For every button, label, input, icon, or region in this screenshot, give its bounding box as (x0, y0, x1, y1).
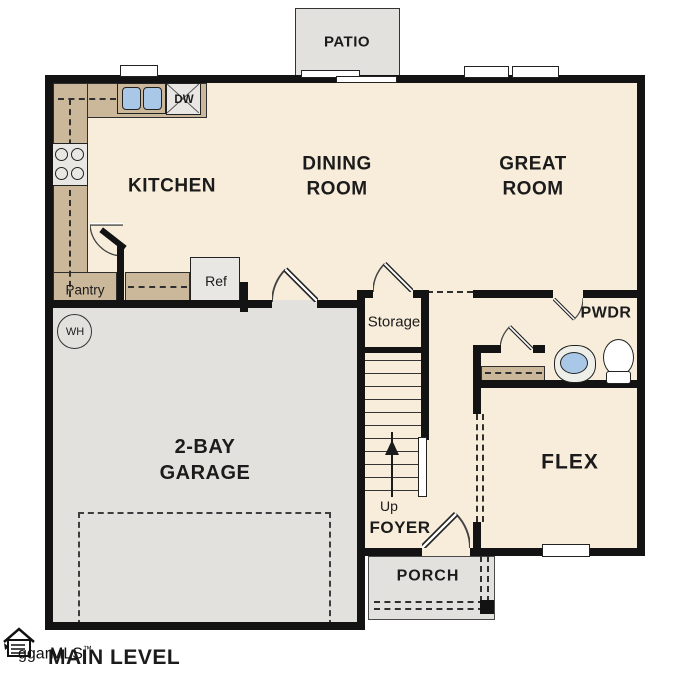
wall (45, 300, 272, 308)
stairs-up-label: Up (380, 498, 398, 514)
garage-entry-door (272, 256, 318, 302)
wall (473, 345, 481, 388)
refrigerator-label: Ref (205, 273, 227, 289)
storage-label: Storage (368, 314, 421, 331)
kitchen-sink (117, 83, 166, 114)
wall (317, 300, 365, 308)
kitchen-window (120, 65, 158, 77)
sink-bowl-left (122, 87, 141, 110)
wall (240, 282, 248, 312)
wall (583, 290, 645, 298)
stair-tread (365, 360, 421, 361)
wall (117, 245, 124, 302)
wall (470, 548, 543, 556)
shelf-dash (485, 372, 542, 374)
porch-roofline-dash (480, 556, 482, 602)
powder-sink (554, 345, 596, 383)
wall (365, 548, 422, 556)
stair-tread (365, 412, 421, 413)
stove (51, 143, 88, 186)
stair-rail (418, 437, 427, 497)
wall (590, 548, 645, 556)
stair-tread (365, 490, 421, 491)
flex-opening-dash (476, 414, 478, 522)
toilet-base (606, 371, 631, 384)
powder-room-door (553, 298, 583, 328)
great-room-label: GREAT ROOM (499, 152, 567, 201)
wall (473, 388, 481, 414)
wall (45, 622, 365, 630)
porch-roofline-dash (374, 608, 484, 610)
garage-label: 2-BAY GARAGE (160, 434, 251, 486)
stair-tread (365, 399, 421, 400)
water-heater-label: WH (66, 326, 84, 338)
wall (421, 290, 429, 440)
burner-icon (71, 148, 84, 161)
burner-icon (55, 148, 68, 161)
burner-icon (55, 167, 68, 180)
porch-roofline-dash (487, 556, 489, 602)
burner-icon (71, 167, 84, 180)
powder-sink-bowl (560, 352, 588, 374)
flex-label: FLEX (541, 448, 599, 475)
floor-plan: DW Ref (0, 0, 687, 687)
wall (637, 75, 645, 556)
refrigerator: Ref (190, 257, 240, 303)
porch-area (368, 556, 495, 620)
wall (357, 290, 365, 630)
stair-tread (365, 373, 421, 374)
counter-dash (128, 286, 187, 288)
porch-roofline-dash (374, 601, 484, 603)
stair-tread (365, 438, 421, 439)
flex-window (542, 544, 590, 557)
wall (45, 75, 53, 630)
wall (413, 290, 421, 298)
garage-door-outline (78, 512, 331, 626)
mls-brand: ggarMLS™ (18, 644, 92, 663)
counter-dash (69, 99, 71, 297)
wall (533, 345, 545, 353)
storage-door (373, 252, 413, 292)
kitchen-label: KITCHEN (128, 175, 216, 200)
stair-tread (365, 477, 421, 478)
great-room-window (512, 66, 559, 78)
patio-sliding-door-panel (336, 76, 397, 83)
pantry-label: Pantry (65, 283, 104, 298)
powder-room-label: PWDR (581, 304, 632, 325)
stair-tread (365, 464, 421, 465)
wall (473, 290, 553, 298)
flex-opening-dash (482, 414, 484, 522)
wall (365, 290, 373, 298)
stair-tread (365, 425, 421, 426)
mls-brand-text: ggarMLS (18, 645, 83, 662)
porch-label: PORCH (397, 567, 460, 588)
counter-dash (58, 98, 116, 100)
cased-opening-dash (427, 291, 473, 293)
patio-label: PATIO (324, 32, 370, 52)
foyer-label: FOYER (369, 517, 430, 539)
porch-post (480, 600, 494, 614)
closet-door (500, 317, 533, 350)
mls-trademark: ™ (83, 644, 92, 654)
dining-room-label: DINING ROOM (302, 152, 372, 201)
great-room-window (464, 66, 509, 78)
water-heater: WH (57, 314, 92, 349)
stair-landing-edge (365, 347, 421, 353)
dishwasher: DW (166, 83, 201, 115)
dishwasher-label: DW (174, 94, 193, 106)
stair-tread (365, 386, 421, 387)
sink-bowl-right (143, 87, 162, 110)
up-arrow-icon (385, 440, 399, 455)
